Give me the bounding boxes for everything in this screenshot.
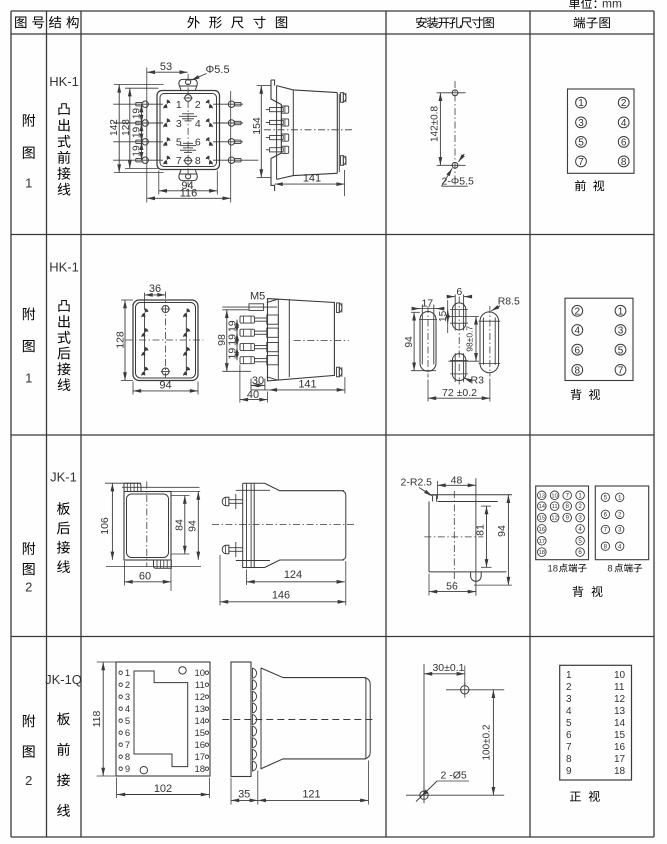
svg-text:19: 19 (131, 126, 142, 138)
svg-text:14: 14 (195, 716, 206, 727)
svg-text:4: 4 (578, 526, 582, 533)
svg-text:18: 18 (614, 766, 626, 777)
svg-text:128: 128 (114, 331, 126, 349)
svg-text:8: 8 (565, 503, 569, 510)
svg-text:3: 3 (618, 326, 624, 337)
svg-text:141: 141 (298, 378, 316, 390)
svg-text:100±0.2: 100±0.2 (481, 724, 492, 761)
svg-text:R8.5: R8.5 (498, 296, 520, 308)
svg-text:12: 12 (614, 694, 626, 705)
svg-text:60: 60 (139, 570, 151, 582)
svg-text:17: 17 (614, 754, 626, 765)
svg-text:6: 6 (456, 286, 462, 298)
svg-text:30±0.1: 30±0.1 (432, 662, 464, 674)
svg-text:8: 8 (575, 366, 581, 377)
svg-text:3: 3 (578, 118, 584, 129)
svg-text:13: 13 (195, 704, 206, 715)
svg-text:5: 5 (176, 137, 182, 149)
svg-text:5: 5 (566, 718, 572, 729)
svg-text:8: 8 (607, 564, 612, 575)
svg-text:9: 9 (565, 515, 569, 522)
svg-text:1: 1 (578, 98, 584, 109)
svg-text:8: 8 (195, 155, 201, 167)
svg-text:3: 3 (618, 527, 622, 534)
svg-text:7: 7 (604, 527, 608, 534)
svg-text:14: 14 (539, 504, 546, 510)
svg-text:mm: mm (602, 0, 622, 11)
svg-text:17: 17 (195, 752, 206, 763)
svg-text:5: 5 (578, 538, 582, 545)
svg-text:12: 12 (195, 692, 206, 703)
svg-text:7: 7 (566, 742, 572, 753)
svg-text:94: 94 (187, 520, 199, 532)
svg-text:7: 7 (618, 366, 624, 377)
svg-text:6: 6 (125, 728, 130, 739)
svg-text:121: 121 (302, 788, 320, 800)
svg-text:128: 128 (121, 119, 132, 136)
svg-text:5: 5 (578, 138, 584, 149)
svg-text:15: 15 (539, 516, 545, 522)
svg-text:36: 36 (149, 283, 161, 295)
svg-text:6: 6 (575, 345, 581, 356)
svg-text:5: 5 (604, 495, 608, 502)
svg-text:9: 9 (566, 766, 572, 777)
svg-text:18: 18 (548, 564, 559, 575)
svg-text:2: 2 (125, 680, 130, 691)
svg-text:18: 18 (539, 550, 545, 556)
svg-text:48: 48 (451, 474, 463, 486)
svg-text:1: 1 (618, 495, 622, 502)
svg-text:1: 1 (566, 670, 572, 681)
svg-text:R3: R3 (471, 375, 485, 387)
svg-text:1: 1 (125, 668, 130, 679)
svg-text:15: 15 (438, 310, 449, 322)
svg-text:2: 2 (575, 306, 581, 317)
svg-text:5: 5 (125, 716, 130, 727)
svg-text:3: 3 (566, 694, 572, 705)
svg-text:4: 4 (618, 543, 622, 550)
svg-text:1: 1 (25, 176, 32, 191)
svg-text:3: 3 (578, 515, 582, 522)
svg-text:56: 56 (446, 580, 458, 592)
svg-text:14: 14 (614, 718, 626, 729)
svg-text:4: 4 (621, 118, 627, 129)
svg-text:94: 94 (404, 336, 415, 348)
svg-text:1: 1 (618, 306, 624, 317)
svg-text:16: 16 (195, 740, 206, 751)
svg-text:8: 8 (566, 754, 572, 765)
svg-text:17: 17 (539, 539, 545, 545)
svg-text:116: 116 (180, 188, 198, 200)
svg-text:6: 6 (621, 138, 627, 149)
svg-text:19: 19 (226, 320, 238, 332)
svg-text:40: 40 (247, 389, 259, 401)
svg-text:9: 9 (125, 764, 130, 775)
svg-text:2: 2 (618, 512, 622, 519)
svg-text:84: 84 (173, 519, 185, 531)
svg-text:2: 2 (621, 98, 627, 109)
svg-text:3: 3 (125, 692, 130, 703)
svg-text:2: 2 (566, 682, 572, 693)
svg-text:6: 6 (566, 730, 572, 741)
svg-text:JK-1: JK-1 (50, 470, 77, 485)
svg-text:15: 15 (195, 728, 206, 739)
svg-text:1: 1 (176, 99, 182, 111)
svg-text:98±0.7: 98±0.7 (465, 326, 475, 352)
svg-text:4: 4 (566, 706, 572, 717)
svg-text:146: 146 (272, 589, 290, 601)
svg-text:10: 10 (614, 670, 626, 681)
svg-text:Φ5.5: Φ5.5 (206, 64, 230, 76)
svg-text:4: 4 (575, 326, 581, 337)
svg-text:2: 2 (195, 99, 201, 111)
svg-text:8: 8 (621, 157, 627, 168)
svg-text:10: 10 (551, 493, 557, 499)
svg-text:19: 19 (226, 348, 238, 360)
svg-text:7: 7 (125, 740, 130, 751)
svg-text:12: 12 (551, 516, 557, 522)
svg-text:11: 11 (614, 682, 625, 693)
svg-text:M5: M5 (250, 291, 265, 303)
svg-text:2: 2 (578, 503, 582, 510)
svg-text:141: 141 (303, 173, 321, 185)
svg-text:5: 5 (618, 345, 624, 356)
svg-text:30: 30 (252, 375, 264, 387)
svg-text:142±0.8: 142±0.8 (430, 106, 441, 143)
svg-text:124: 124 (284, 569, 302, 581)
svg-text:142: 142 (109, 119, 120, 136)
svg-text:16: 16 (539, 527, 545, 533)
svg-text:17: 17 (421, 298, 433, 310)
svg-text:HK-1: HK-1 (49, 260, 79, 275)
svg-text:102: 102 (154, 783, 172, 795)
svg-text:10: 10 (195, 668, 206, 679)
svg-text:6: 6 (195, 137, 201, 149)
svg-text:4: 4 (195, 118, 201, 130)
svg-text:7: 7 (176, 155, 182, 167)
svg-text:19: 19 (131, 108, 142, 120)
svg-text:8: 8 (125, 752, 130, 763)
svg-text:11: 11 (195, 680, 205, 691)
svg-text:118: 118 (91, 710, 103, 727)
svg-text:1: 1 (25, 371, 32, 386)
svg-text:6: 6 (578, 549, 582, 556)
svg-text:94: 94 (496, 525, 508, 537)
svg-text:13: 13 (539, 493, 545, 499)
svg-text:53: 53 (160, 61, 172, 73)
svg-text:JK-1Q: JK-1Q (45, 672, 82, 687)
svg-text:3: 3 (176, 118, 182, 130)
svg-text:19: 19 (226, 334, 238, 346)
svg-text:19: 19 (131, 145, 142, 157)
svg-text:4: 4 (125, 704, 130, 715)
svg-text:15: 15 (614, 730, 626, 741)
svg-text:8: 8 (604, 543, 608, 550)
svg-text:16: 16 (614, 742, 626, 753)
svg-text:6: 6 (604, 512, 608, 519)
svg-text:7: 7 (578, 157, 584, 168)
svg-text:81: 81 (475, 524, 487, 536)
svg-text:2: 2 (25, 580, 32, 595)
svg-text:1: 1 (578, 492, 582, 499)
svg-text:106: 106 (99, 517, 111, 535)
svg-text:HK-1: HK-1 (49, 74, 79, 89)
svg-text:154: 154 (251, 117, 263, 135)
svg-text:13: 13 (614, 706, 626, 717)
svg-text:18: 18 (195, 764, 206, 775)
svg-text:7: 7 (565, 492, 569, 499)
svg-text:2 -Ø5: 2 -Ø5 (441, 770, 467, 782)
svg-text:35: 35 (238, 788, 250, 800)
svg-text:2-R2.5: 2-R2.5 (401, 477, 433, 489)
svg-text:11: 11 (552, 504, 558, 510)
svg-text:94: 94 (159, 379, 171, 391)
svg-text:2: 2 (25, 773, 32, 788)
svg-text:72 ±0.2: 72 ±0.2 (442, 387, 477, 399)
